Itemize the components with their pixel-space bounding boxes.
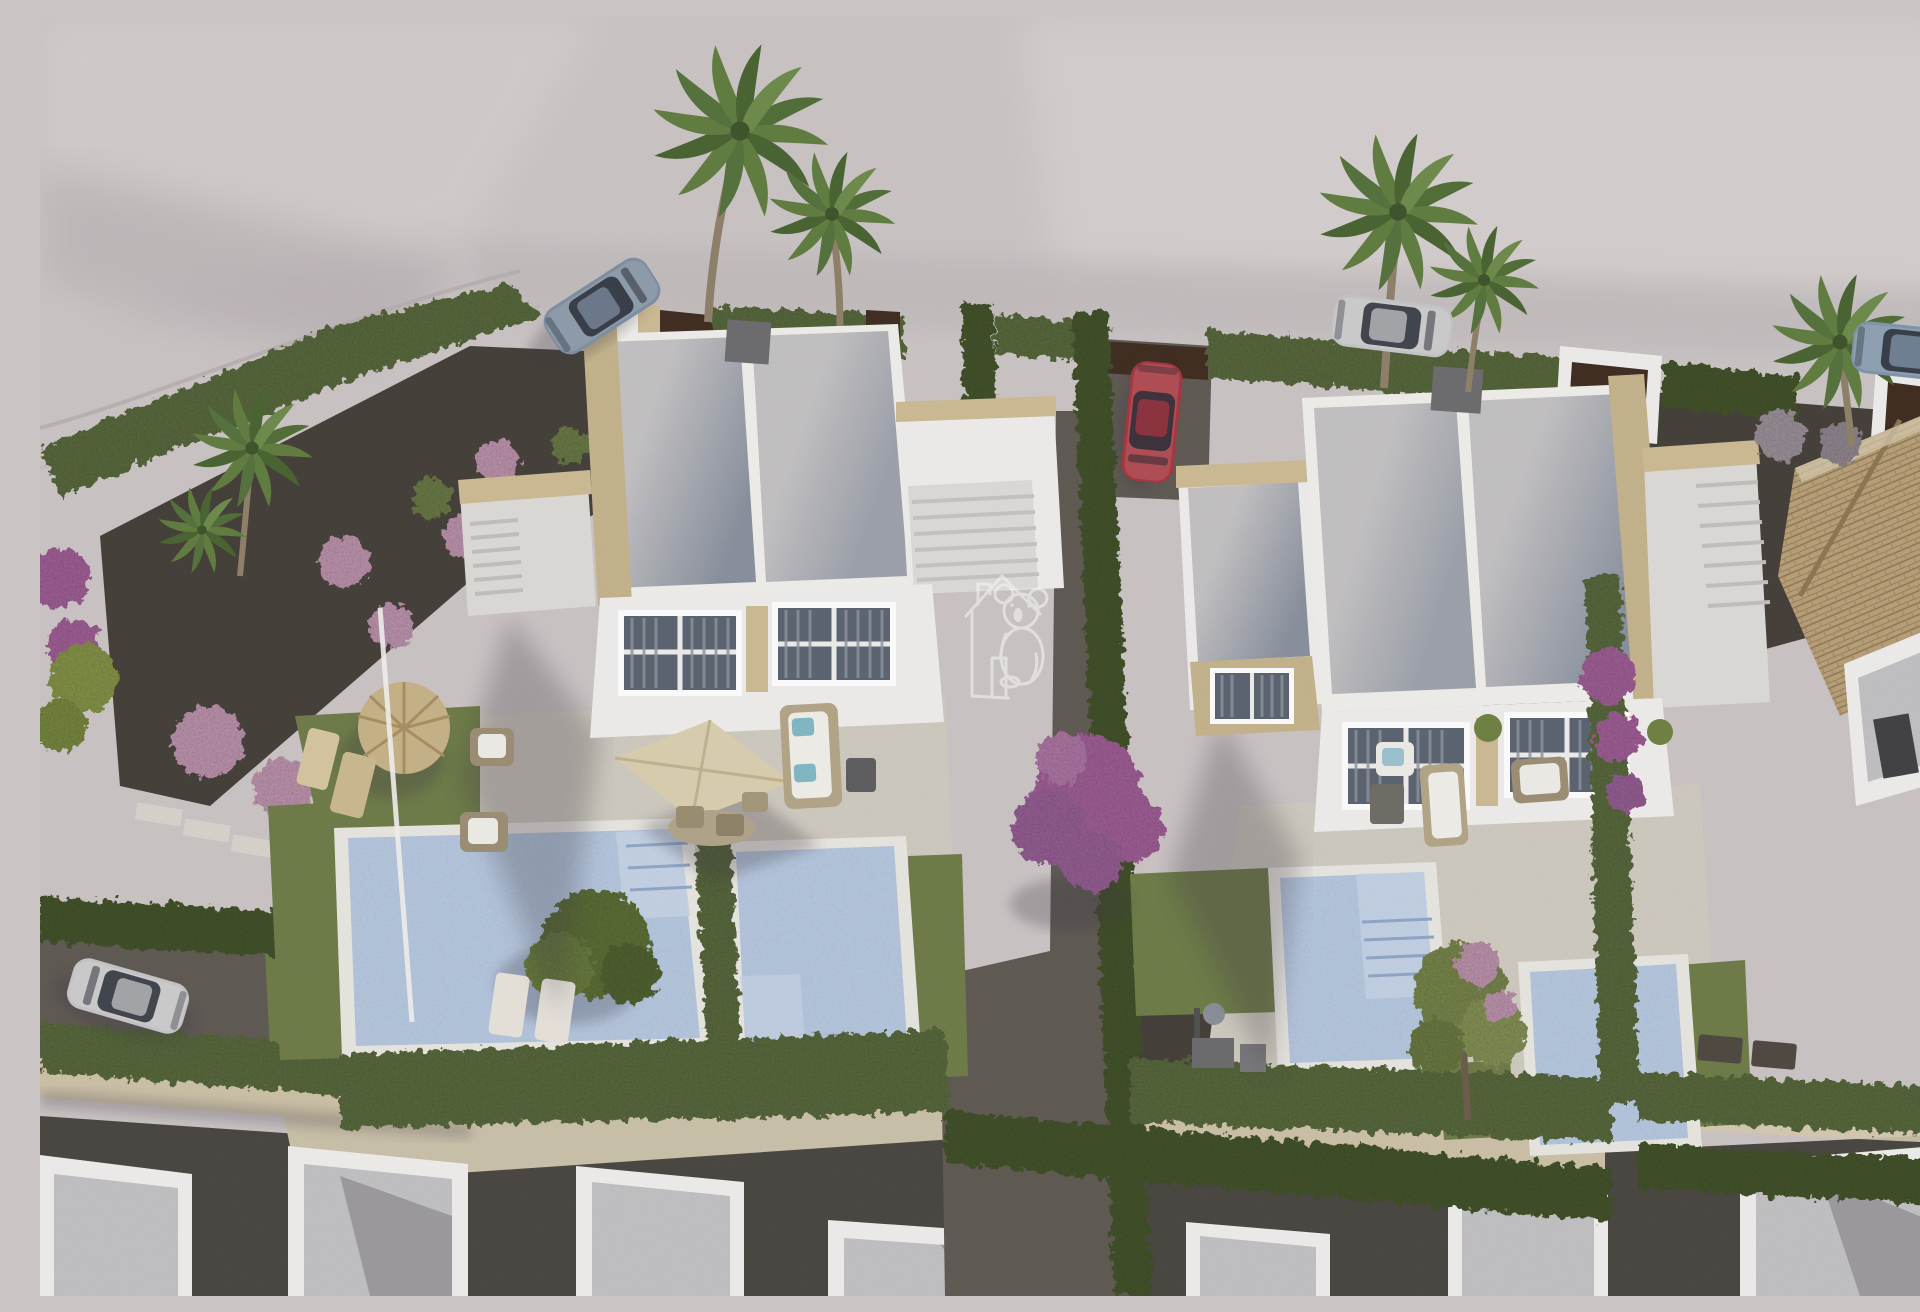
vignette xyxy=(40,16,1920,1296)
aerial-render: Aerial 3D architectural rendering of a m… xyxy=(40,16,1920,1296)
render-canvas xyxy=(40,16,1920,1296)
